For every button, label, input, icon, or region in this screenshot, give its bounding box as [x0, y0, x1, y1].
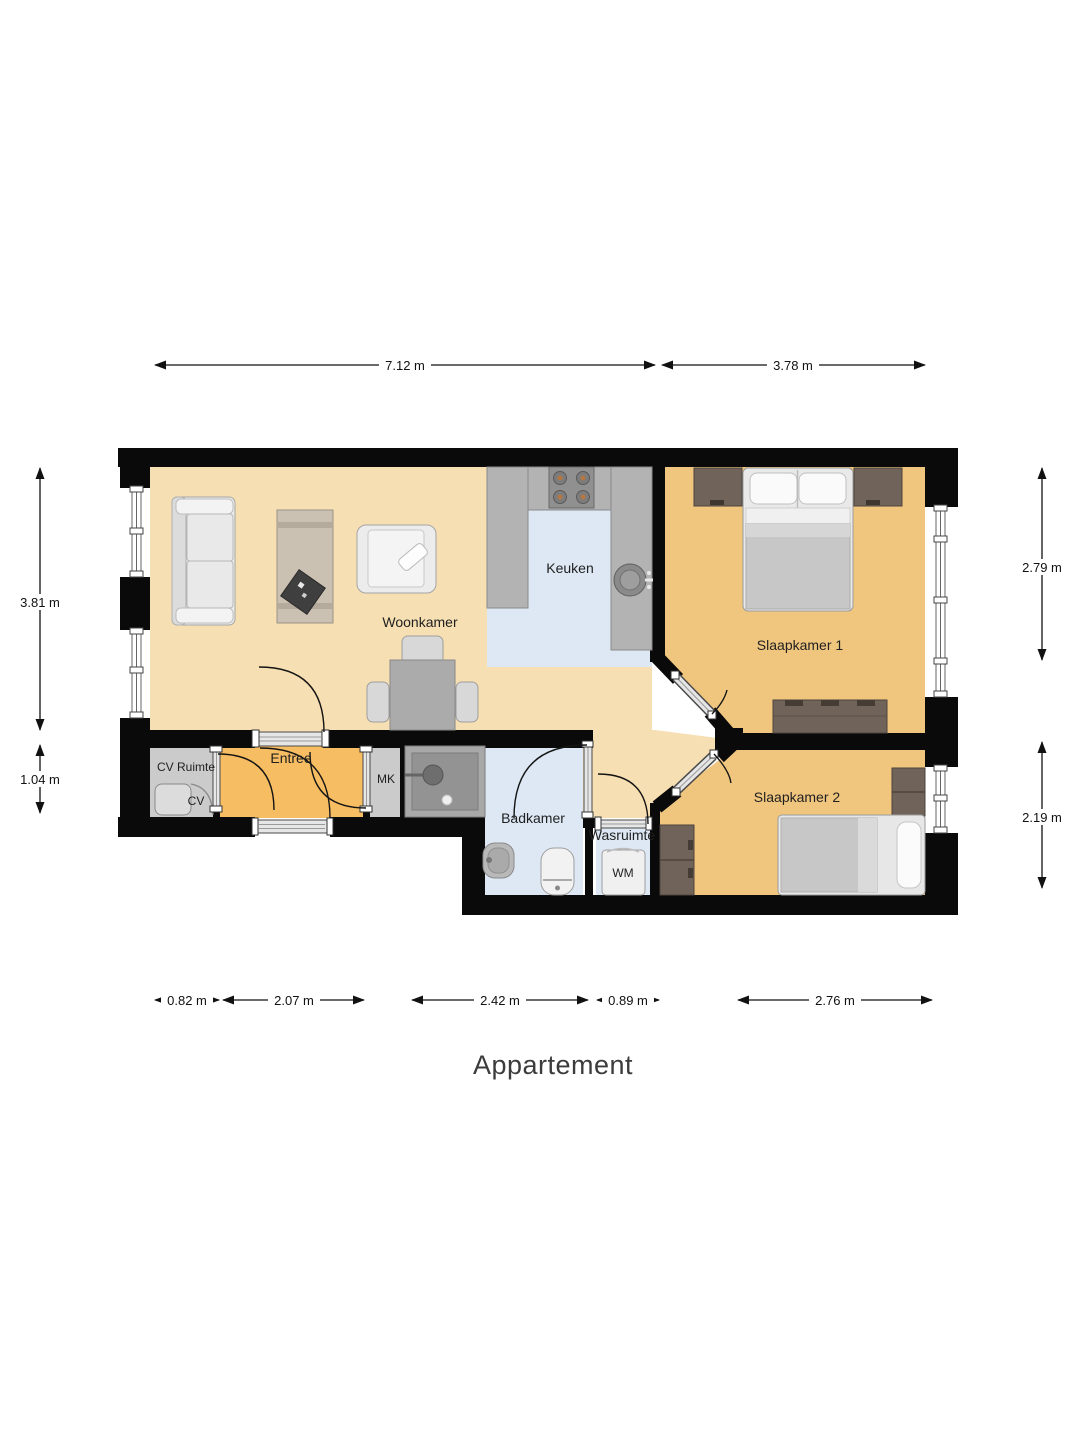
label-badkamer: Badkamer — [501, 810, 565, 826]
wall-slaapkamer-divider — [723, 733, 958, 750]
dim-right-2: 2.19 m — [1016, 742, 1068, 888]
armchair — [357, 525, 436, 593]
window-left-1 — [118, 486, 150, 577]
dim-label-right-1: 2.79 m — [1022, 560, 1062, 575]
dim-right-1: 2.79 m — [1016, 468, 1068, 660]
wall-left-pier-2 — [120, 577, 150, 630]
bathroom-sink — [483, 843, 514, 878]
floorplan-canvas: Woonkamer Keuken Slaapkamer 1 Slaapkamer… — [0, 0, 1080, 1440]
dim-bottom-3: 2.42 m — [412, 992, 588, 1008]
label-slaapkamer2: Slaapkamer 2 — [754, 789, 841, 805]
dim-bottom-2: 2.07 m — [223, 992, 364, 1008]
plan-title: Appartement — [473, 1050, 633, 1080]
shower — [405, 746, 485, 817]
label-entree: Entree — [270, 750, 311, 766]
window-right-2 — [925, 765, 958, 833]
sideboard-rug — [277, 510, 333, 623]
bed-2 — [778, 815, 925, 895]
window-left-2 — [118, 628, 150, 718]
dresser — [773, 700, 887, 733]
floorplan-page: Woonkamer Keuken Slaapkamer 1 Slaapkamer… — [0, 0, 1080, 1440]
toilet — [541, 848, 574, 895]
wall-right-pier-3 — [925, 833, 958, 915]
label-cv: CV — [188, 794, 205, 808]
bed-1 — [743, 468, 853, 611]
wardrobe — [660, 825, 694, 895]
dim-left-2: 1.04 m — [14, 745, 66, 813]
dining-table — [390, 660, 455, 730]
cabinet — [892, 768, 925, 816]
wall-mk-shower — [400, 742, 405, 817]
label-cv-ruimte: CV Ruimte — [157, 760, 215, 774]
label-wasruimte: Wasruimte — [589, 827, 656, 843]
dim-top-1: 7.12 m — [155, 357, 655, 373]
dim-left-1: 3.81 m — [14, 468, 66, 730]
dim-label-bottom-5: 2.76 m — [815, 993, 855, 1008]
wall-right-pier-1 — [925, 448, 958, 507]
dim-top-2: 3.78 m — [662, 357, 925, 373]
dim-label-right-2: 2.19 m — [1022, 810, 1062, 825]
stove — [549, 467, 594, 508]
dim-label-bottom-2: 2.07 m — [274, 993, 314, 1008]
wall-right-pier-2 — [925, 697, 958, 767]
wall-bottom-left-a — [118, 817, 255, 837]
label-wm: WM — [612, 866, 633, 880]
dim-label-left-2: 1.04 m — [20, 772, 60, 787]
dim-label-bottom-4: 0.89 m — [608, 993, 648, 1008]
dim-label-top-2: 3.78 m — [773, 358, 813, 373]
sofa — [172, 497, 235, 625]
dim-bottom-1: 0.82 m — [155, 992, 219, 1008]
dim-label-left-1: 3.81 m — [20, 595, 60, 610]
dim-label-bottom-3: 2.42 m — [480, 993, 520, 1008]
window-right-1 — [925, 505, 958, 697]
label-mk: MK — [377, 772, 395, 786]
wall-bottom-right — [462, 895, 958, 915]
dim-label-bottom-1: 0.82 m — [167, 993, 207, 1008]
label-keuken: Keuken — [546, 560, 593, 576]
label-woonkamer: Woonkamer — [382, 614, 458, 630]
dim-bottom-4: 0.89 m — [597, 992, 659, 1008]
wall-left-pier-1 — [120, 448, 150, 488]
dim-label-top-1: 7.12 m — [385, 358, 425, 373]
wall-bottom-left-b — [330, 817, 462, 837]
dim-bottom-5: 2.76 m — [738, 992, 932, 1008]
wall-top — [118, 448, 958, 467]
wall-woonkamer-bottom-a — [140, 730, 255, 748]
label-slaapkamer1: Slaapkamer 1 — [757, 637, 844, 653]
